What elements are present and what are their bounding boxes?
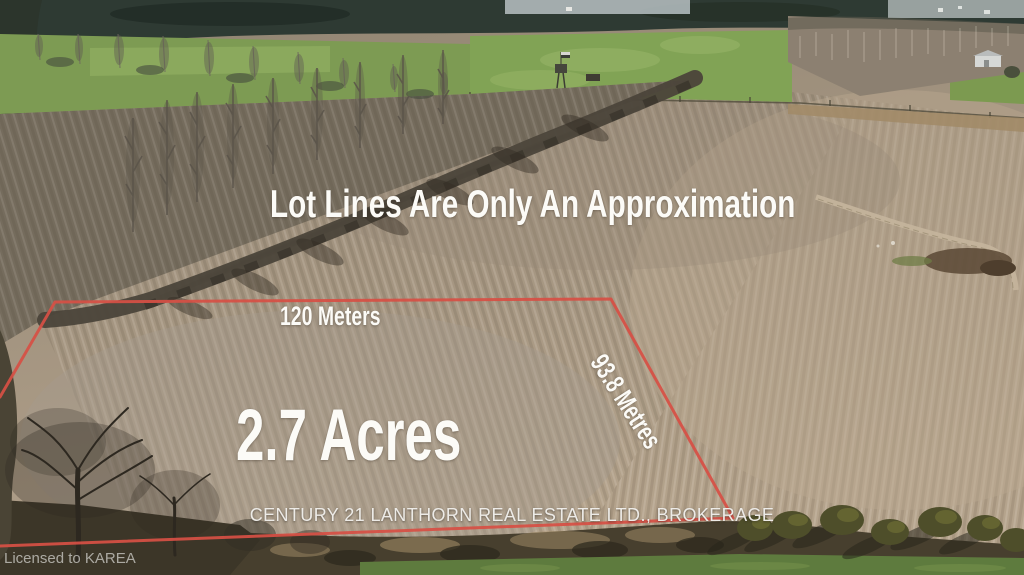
frontage-measurement-text: 120 Meters: [280, 303, 381, 330]
lot-boundary-overlay: [0, 0, 1024, 575]
aerial-listing-photo: Lot Lines Are Only An Approximation 120 …: [0, 0, 1024, 575]
lot-lines-disclaimer: Lot Lines Are Only An Approximation: [270, 185, 961, 224]
license-watermark: Licensed to KAREA: [4, 551, 136, 566]
lot-area-text: 2.7 Acres: [236, 399, 461, 472]
frontage-measurement-label: 120 Meters: [280, 303, 420, 330]
lot-area-label: 2.7 Acres: [236, 399, 558, 472]
brokerage-caption: CENTURY 21 LANTHORN REAL ESTATE LTD., BR…: [250, 506, 775, 524]
lot-lines-disclaimer-text: Lot Lines Are Only An Approximation: [270, 185, 795, 224]
